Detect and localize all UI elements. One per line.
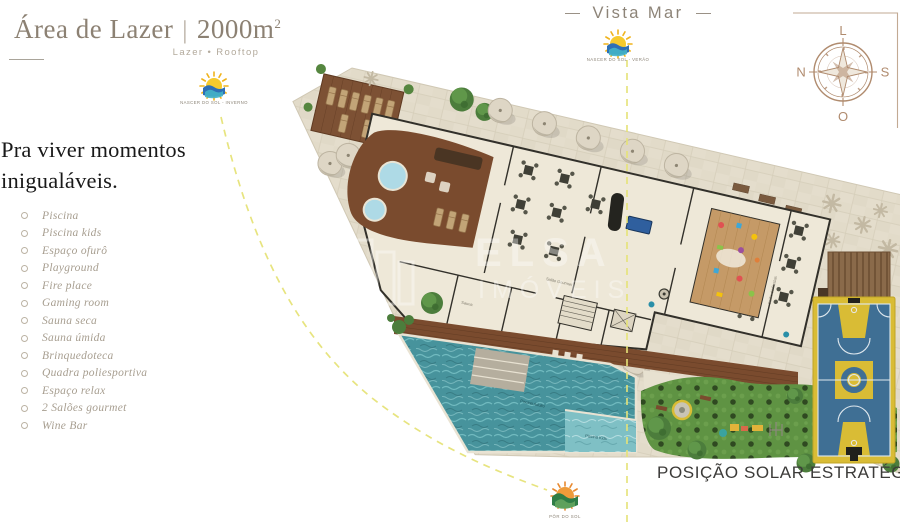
amenity-label: Sauna seca [42, 315, 97, 327]
solar-position-label: POSIÇÃO SOLAR ESTRATÉGICA [657, 463, 900, 483]
headline-line2: inigualáveis. [1, 165, 186, 196]
watermark-line1: ELSA [475, 231, 614, 275]
amenity-item: Sauna seca [21, 312, 147, 330]
leisure-area-poster: Salão Gourmet Sauna Salão de Festas [0, 0, 900, 526]
amenity-item: Fire place [21, 277, 147, 295]
compass-label-north: N [796, 65, 805, 80]
sunrise-summer-icon [604, 30, 632, 58]
amenity-item: Quadra poliesportiva [21, 365, 147, 383]
amenity-label: Espaço relax [42, 385, 106, 397]
amenity-label: Quadra poliesportiva [42, 367, 147, 379]
amenity-item: Piscina [21, 207, 147, 225]
amenity-label: Piscina kids [42, 227, 102, 239]
title-block: Área de Lazer | 2000m2 Lazer • Rooftop [14, 14, 281, 45]
sunrise-winter-caption: NASCER DO SOL - INVERNO [180, 100, 248, 105]
sunset-caption: PÔR DO SOL [549, 514, 581, 519]
bullet-icon [21, 387, 28, 394]
headline: Pra viver momentos inigualáveis. [1, 134, 186, 196]
bullet-icon [21, 352, 28, 359]
bullet-icon [21, 370, 28, 377]
vista-mar: Vista Mar [540, 4, 736, 23]
basketball-hoop [848, 298, 860, 303]
title-main: Área de Lazer [14, 14, 173, 45]
bullet-icon [21, 422, 28, 429]
sunrise-winter-icon [200, 72, 228, 100]
amenity-label: Gaming room [42, 297, 109, 309]
amenity-item: Brinquedoteca [21, 347, 147, 365]
amenity-label: Sauna úmida [42, 332, 106, 344]
title-area: 2000m2 [197, 14, 282, 45]
amenity-item: Sauna úmida [21, 330, 147, 348]
watermark-line2: IMÓVEIS [478, 275, 631, 304]
basketball-hoop [846, 447, 862, 455]
bullet-icon [21, 247, 28, 254]
bullet-icon [21, 230, 28, 237]
bullet-icon [21, 405, 28, 412]
amenity-label: Espaço ofurô [42, 245, 107, 257]
compass-label-south: S [881, 65, 890, 80]
amenity-label: Piscina [42, 210, 79, 222]
decorative-dash [696, 13, 711, 14]
bullet-icon [21, 335, 28, 342]
amenity-label: Playground [42, 262, 99, 274]
pergola [818, 252, 890, 302]
bullet-icon [21, 317, 28, 324]
amenity-label: 2 Salões gourmet [42, 402, 127, 414]
amenity-item: Piscina kids [21, 225, 147, 243]
amenity-item: Wine Bar [21, 417, 147, 435]
amenity-item: Espaço relax [21, 382, 147, 400]
compass-label-west: O [838, 109, 848, 124]
bullet-icon [21, 282, 28, 289]
amenity-label: Fire place [42, 280, 92, 292]
bullet-icon [21, 300, 28, 307]
title-subtitle: Lazer • Rooftop [156, 47, 276, 58]
sports-court [813, 297, 895, 463]
bullet-icon [21, 265, 28, 272]
headline-line1: Pra viver momentos [1, 134, 186, 165]
sunset-icon [551, 482, 579, 510]
tree-icon [421, 292, 443, 314]
amenity-label: Wine Bar [42, 420, 88, 432]
title-separator: | [182, 17, 188, 45]
amenity-item: Playground [21, 260, 147, 278]
compass-label-east: L [839, 23, 846, 38]
amenity-item: Espaço ofurô [21, 242, 147, 260]
title-area-sup: 2 [274, 16, 281, 31]
amenities-list: Piscina Piscina kids Espaço ofurô Playgr… [21, 207, 147, 435]
amenity-item: 2 Salões gourmet [21, 400, 147, 418]
amenity-label: Brinquedoteca [42, 350, 114, 362]
page-title: Área de Lazer | 2000m2 [14, 14, 281, 45]
vista-mar-label: Vista Mar [593, 4, 684, 23]
title-divider [9, 59, 44, 60]
amenity-item: Gaming room [21, 295, 147, 313]
decorative-dash [565, 13, 580, 14]
compass-rose-icon: L S O N [796, 23, 889, 124]
bullet-icon [21, 212, 28, 219]
sunrise-summer-caption: NASCER DO SOL - VERÃO [587, 57, 650, 62]
